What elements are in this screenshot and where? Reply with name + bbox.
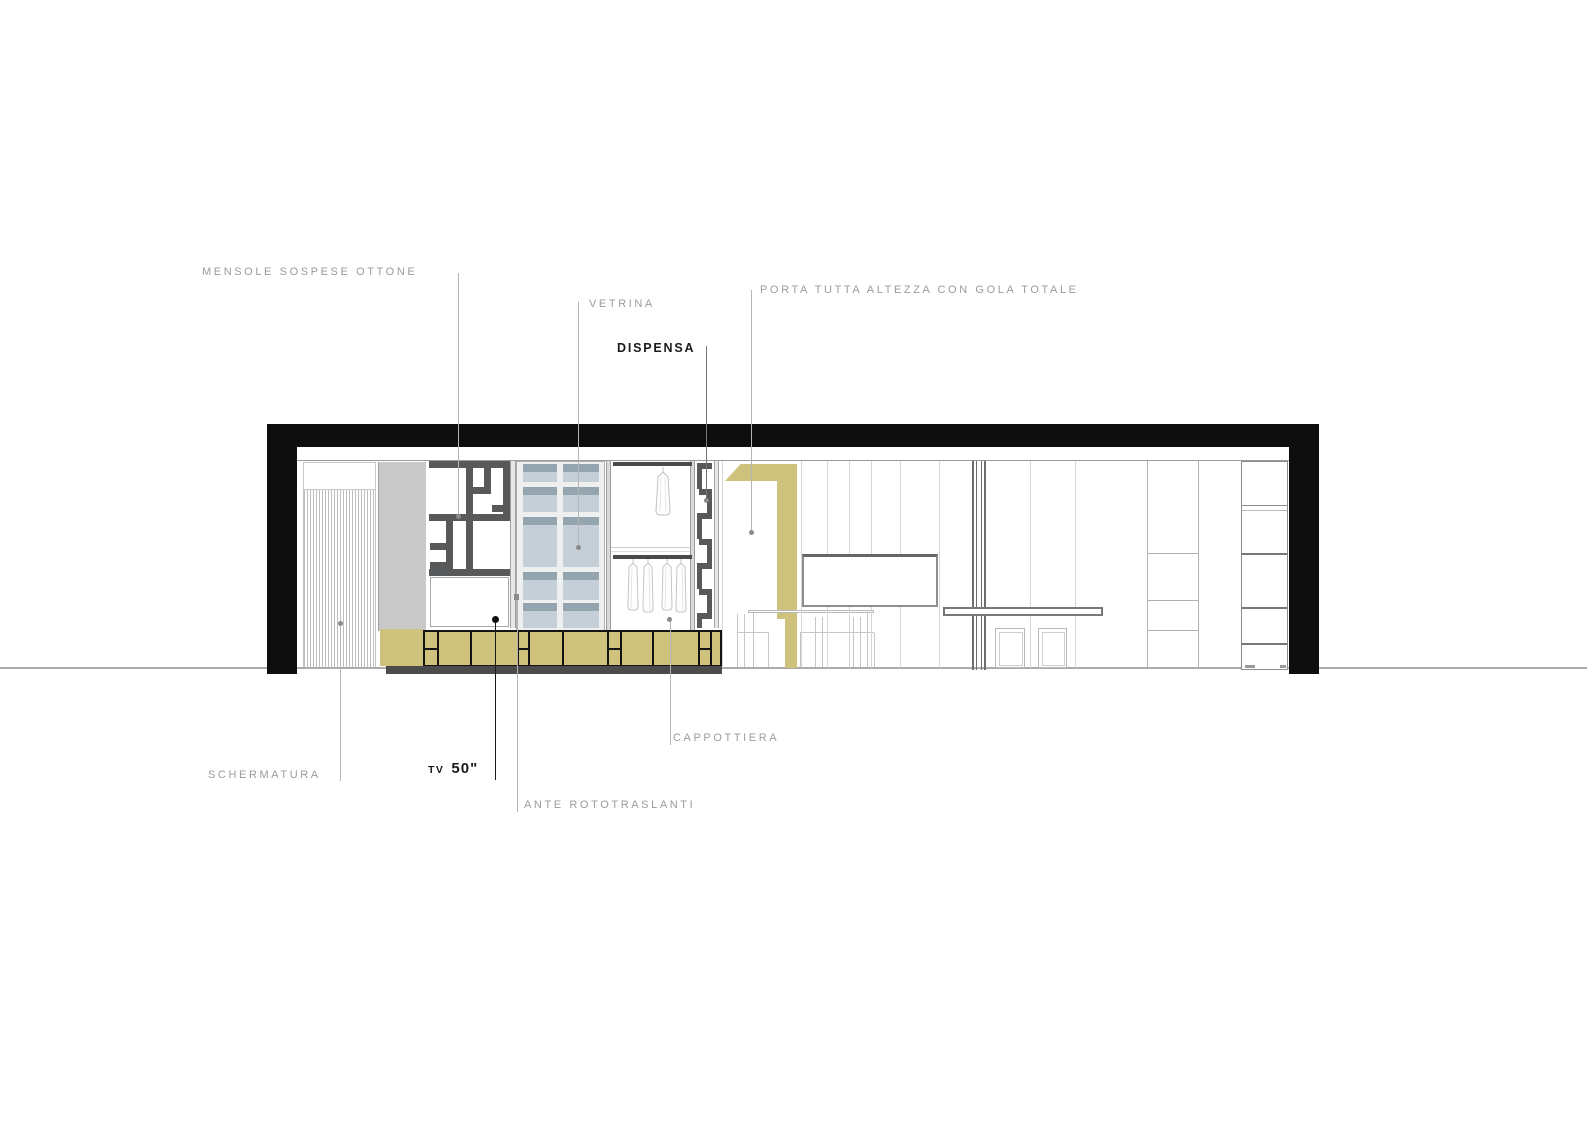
cabinet-divider <box>620 632 622 665</box>
glass-pane <box>563 487 599 512</box>
glass-pane <box>563 572 599 600</box>
door-jamb-line <box>722 461 723 668</box>
storage-mark <box>1280 665 1286 668</box>
schermatura-leader-dot <box>338 621 343 626</box>
label-tv: TV50" <box>428 760 478 778</box>
chair-sketch-line <box>840 632 874 633</box>
storage-divider <box>1242 643 1287 645</box>
plinth-strip <box>386 666 722 674</box>
mensole-leader-dot <box>456 514 461 519</box>
partition-line <box>976 461 977 670</box>
ante-leader-line <box>517 599 518 812</box>
low-cabinet-front <box>1038 628 1067 668</box>
wardrobe-shelf-line <box>611 551 690 552</box>
shelf-seg <box>430 562 446 569</box>
label-tv-size: 50" <box>451 760 478 777</box>
shelf-seg <box>466 487 491 494</box>
vetrina-glass-case <box>516 461 605 631</box>
cappottiera-leader-line <box>670 621 671 745</box>
chair-sketch-line <box>860 617 861 667</box>
cupboard-line <box>1147 553 1198 554</box>
storage-divider <box>1242 553 1287 555</box>
label-dispensa: DISPENSA <box>617 341 695 355</box>
wall-line <box>1198 461 1199 668</box>
storage-divider <box>1242 505 1287 506</box>
wardrobe-left-wall <box>606 461 611 630</box>
schermatura-leader-line <box>340 625 341 781</box>
glass-pane <box>563 517 599 567</box>
cupboard-line <box>1147 600 1198 601</box>
cupboard-line <box>1147 630 1198 631</box>
ladder-seg <box>697 469 702 489</box>
storage-divider <box>1242 607 1287 609</box>
shelf-seg <box>430 543 447 550</box>
hanging-coats-sketch <box>626 558 688 615</box>
table-leg-sketch <box>753 613 754 667</box>
shelf-seg <box>466 521 473 569</box>
vetrina-leader-line <box>578 302 579 547</box>
tv-leader-line <box>495 621 496 780</box>
ladder-seg <box>697 569 702 589</box>
cabinet-divider <box>437 632 439 665</box>
dispensa-leader-dot <box>704 498 709 503</box>
console-bar <box>943 607 1103 616</box>
storage-column <box>1241 461 1288 670</box>
wardrobe-right-wall <box>690 461 695 630</box>
shelf-bar-low <box>429 569 511 576</box>
porta-leader-dot <box>749 530 754 535</box>
partition-line <box>984 461 986 670</box>
label-schermatura: SCHERMATURA <box>208 769 321 781</box>
chair-sketch-line <box>737 614 738 667</box>
base-cabinet-plain <box>380 629 423 666</box>
vetrina-leader-dot <box>576 545 581 550</box>
schermatura-header-box <box>303 462 376 490</box>
glass-pane <box>563 603 599 628</box>
cabinet-divider <box>562 632 564 665</box>
ladder-seg <box>707 545 712 563</box>
shelf-seg <box>492 505 510 512</box>
chair-sketch-line <box>874 633 875 667</box>
base-cabinet-row <box>423 630 722 667</box>
glass-pane <box>523 487 557 512</box>
label-tv-prefix: TV <box>428 764 444 776</box>
tv-leader-dot <box>492 616 499 623</box>
partition-line <box>981 461 982 670</box>
shelf-bar-top <box>429 461 516 468</box>
gola-floor-band <box>785 619 797 668</box>
table-top-sketch <box>748 610 874 613</box>
dispensa-leader-line <box>706 346 707 500</box>
drawer-split <box>609 648 620 650</box>
cabinet-divider <box>710 632 712 665</box>
table-leg-sketch <box>867 613 868 667</box>
drawer-split <box>700 648 710 650</box>
wall-line <box>1147 461 1148 668</box>
wall-line <box>1075 461 1076 668</box>
chair-sketch-line <box>768 633 769 667</box>
partition-line <box>972 461 974 670</box>
label-cappottiera: CAPPOTTIERA <box>673 732 779 744</box>
cabinet-divider <box>652 632 654 665</box>
label-ante: ANTE ROTOTRASLANTI <box>524 799 695 811</box>
glass-pane <box>563 464 599 482</box>
chair-sketch-line <box>853 617 854 667</box>
cabinet-front-inset <box>1042 632 1065 666</box>
cappottiera-leader-dot <box>667 617 672 622</box>
storage-divider <box>1242 510 1287 511</box>
chair-sketch-line <box>822 617 823 667</box>
chair-sketch-line <box>744 614 745 667</box>
chair-sketch-line <box>815 617 816 667</box>
glass-pane <box>523 517 557 567</box>
cabinet-divider <box>470 632 472 665</box>
wardrobe-shelf-line <box>611 547 690 548</box>
architectural-elevation-drawing: MENSOLE SOSPESE OTTONE VETRINA DISPENSA … <box>0 0 1587 1123</box>
glass-pane <box>523 603 557 628</box>
gray-side-panel <box>378 462 426 631</box>
wall-niche <box>802 554 938 607</box>
drawer-split <box>519 648 528 650</box>
shelf-seg <box>484 468 491 488</box>
ladder-right-mullion <box>714 461 719 628</box>
low-cabinet-front <box>995 628 1025 668</box>
label-porta: PORTA TUTTA ALTEZZA CON GOLA TOTALE <box>760 284 1079 296</box>
ante-leader-dot <box>514 594 519 600</box>
drawer-split <box>425 648 437 650</box>
ladder-seg <box>707 595 712 613</box>
label-vetrina: VETRINA <box>589 298 655 310</box>
ladder-seg <box>697 619 702 628</box>
cabinet-front-inset <box>999 632 1023 666</box>
shelf-bar-mid <box>429 514 516 521</box>
cabinet-divider <box>528 632 530 665</box>
wall-line <box>939 461 940 668</box>
storage-mark <box>1245 665 1255 668</box>
wall-line <box>1030 461 1031 668</box>
label-mensole: MENSOLE SOSPESE OTTONE <box>202 266 417 278</box>
glass-pane <box>523 464 557 482</box>
chair-sketch-line <box>800 632 840 633</box>
glass-pane <box>523 572 557 600</box>
mensole-leader-line <box>458 273 459 516</box>
hanging-dress-sketch <box>650 466 676 519</box>
porta-leader-line <box>751 290 752 532</box>
gola-right-band <box>777 464 797 619</box>
shelf-seg <box>446 521 453 569</box>
ladder-seg <box>697 519 702 539</box>
